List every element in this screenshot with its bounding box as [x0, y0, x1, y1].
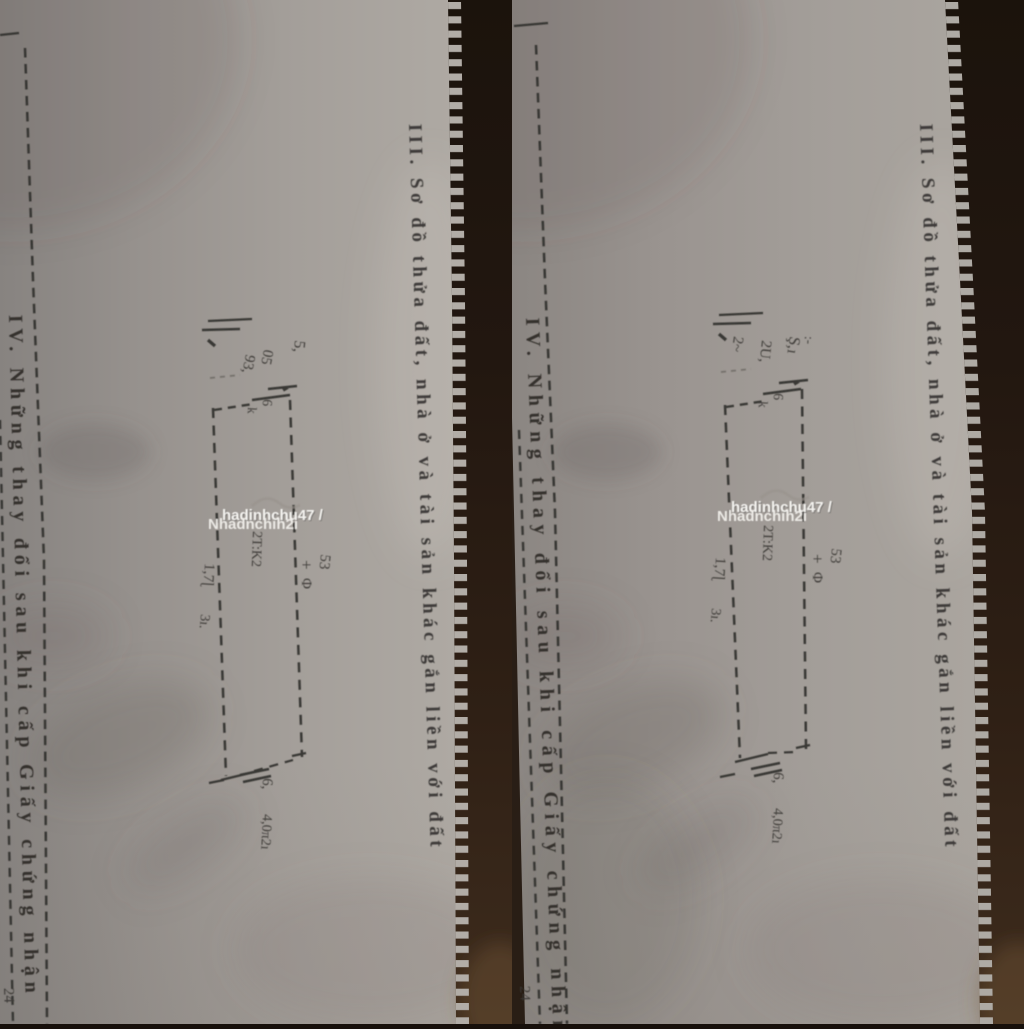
svg-text:2U,: 2U,: [756, 340, 774, 364]
svg-text:24: 24: [0, 988, 17, 1004]
svg-text:53: 53: [315, 554, 332, 571]
svg-text:Ş,ı: Ş,ı: [783, 335, 803, 355]
svg-text:1,7ɭ: 1,7ɭ: [710, 557, 728, 582]
svg-text:4,0π2ı: 4,0π2ı: [257, 814, 274, 850]
svg-text:k: k: [756, 401, 771, 409]
svg-text:6,: 6,: [769, 772, 786, 784]
svg-text:k: k: [245, 407, 260, 415]
svg-text:Nhadnchih2ı̇: Nhadnchih2ı̇: [208, 516, 298, 533]
svg-text:6: 6: [770, 393, 785, 401]
svg-text:Φ: Φ: [809, 572, 825, 583]
svg-text:6: 6: [259, 399, 274, 407]
svg-text:+: +: [297, 560, 316, 570]
svg-text:3ı.: 3ı.: [196, 614, 212, 630]
svg-text:6,: 6,: [258, 778, 275, 790]
svg-text:Φ: Φ: [298, 578, 314, 589]
svg-text:+: +: [808, 554, 827, 564]
svg-text:2T:K2: 2T:K2: [248, 531, 264, 567]
svg-text:05: 05: [257, 348, 276, 366]
svg-text:5,: 5,: [290, 340, 308, 354]
svg-text:4,0π2ı: 4,0π2ı: [768, 808, 785, 844]
svg-text:24: 24: [516, 986, 533, 1002]
svg-text::-: :-: [802, 336, 817, 344]
svg-text:1,7ɭ: 1,7ɭ: [199, 563, 217, 588]
svg-text:2~: 2~: [728, 335, 746, 353]
svg-text:Nhadnchih2ı̇: Nhadnchih2ı̇: [717, 508, 807, 525]
svg-text:53: 53: [826, 548, 843, 565]
svg-text:3ı.: 3ı.: [707, 608, 723, 624]
svg-text:2T:K2: 2T:K2: [759, 525, 775, 561]
